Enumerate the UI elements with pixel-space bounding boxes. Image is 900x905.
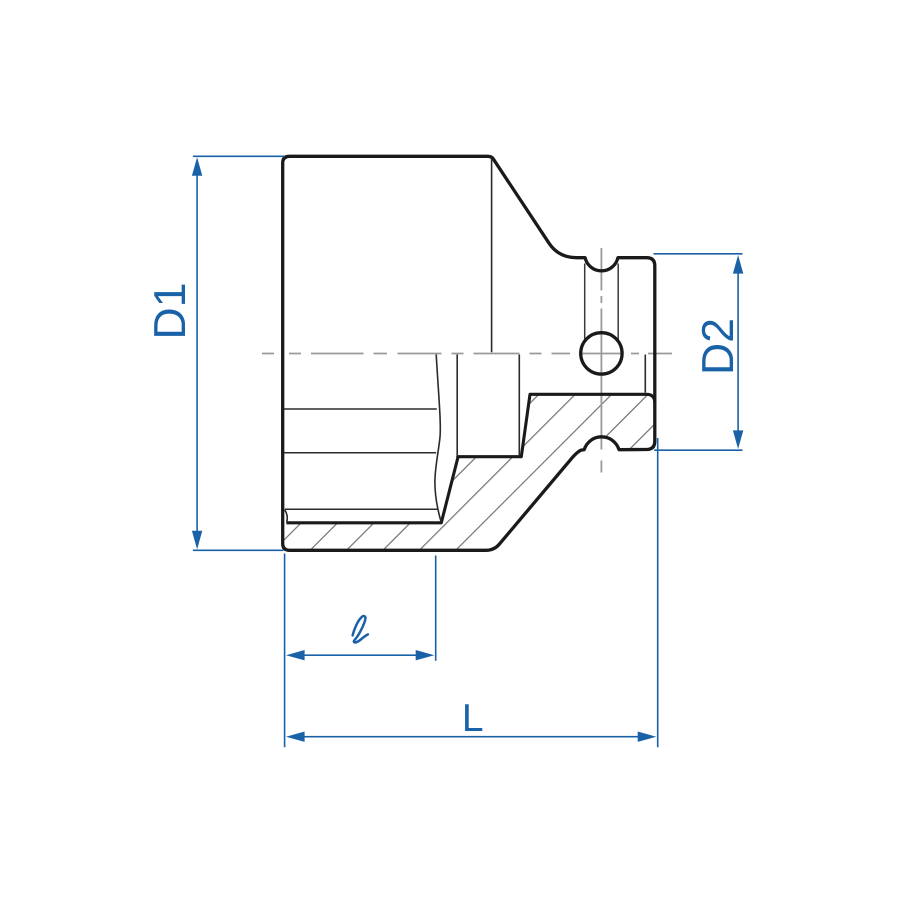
svg-text:D2: D2 — [694, 318, 743, 375]
svg-text:D1: D1 — [146, 283, 195, 340]
svg-text:L: L — [462, 697, 484, 740]
